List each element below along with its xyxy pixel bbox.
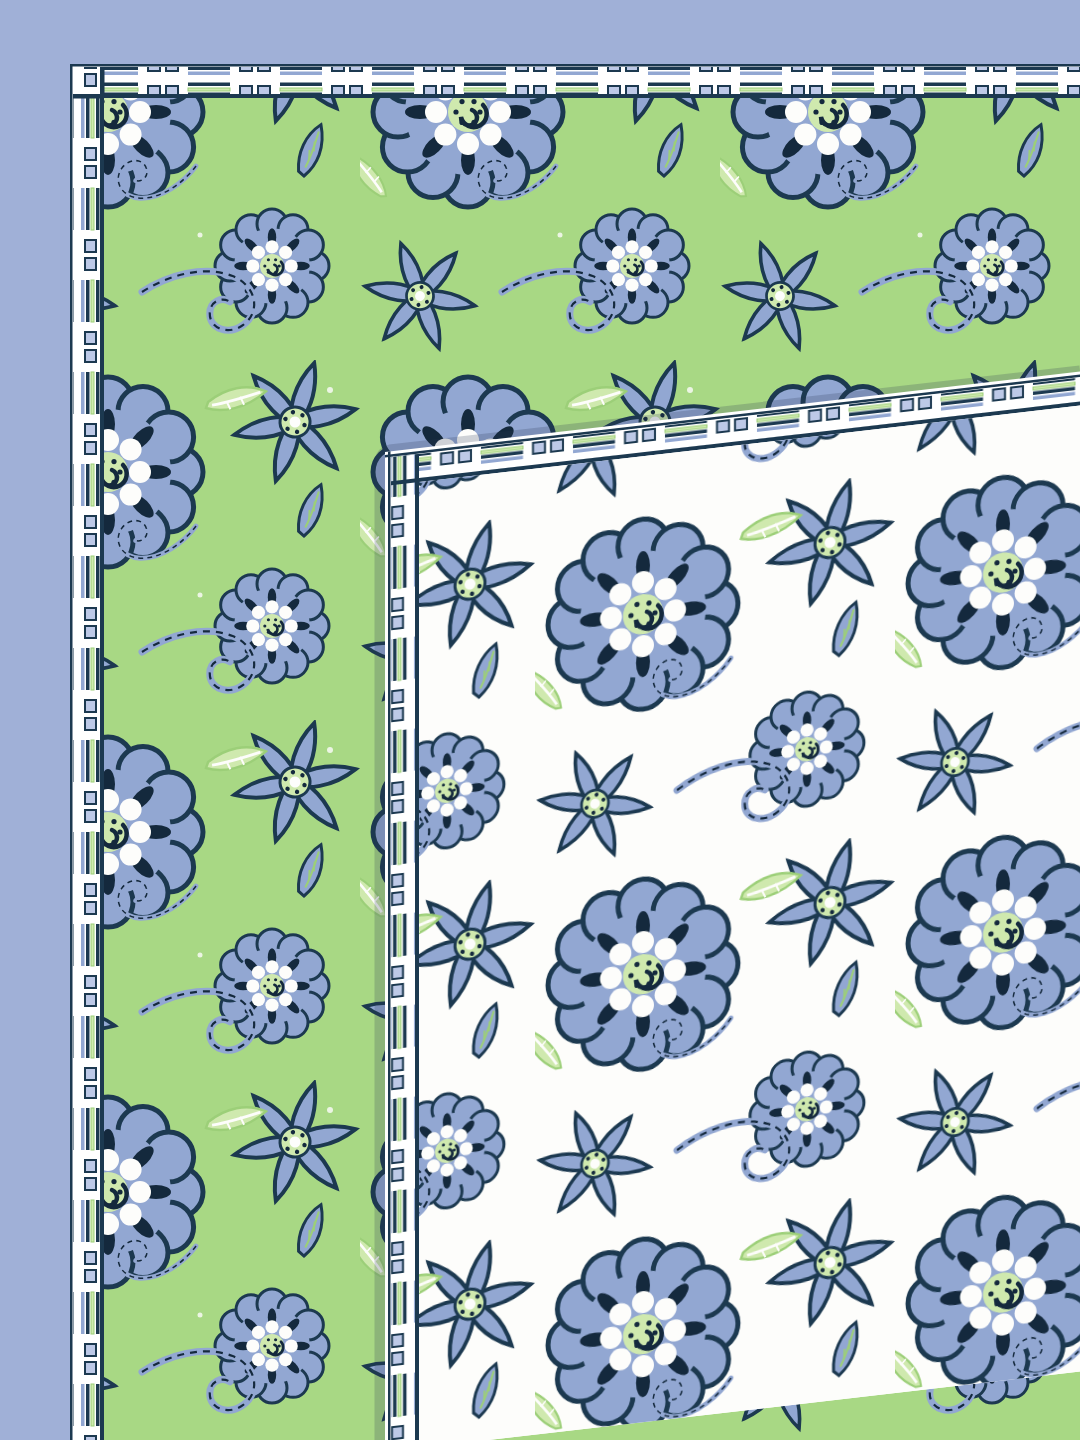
white-sheet-inner-seam-left — [415, 454, 419, 1440]
green-sheet-outer-seam-left — [70, 64, 73, 1440]
photo-canvas — [0, 0, 1080, 1440]
white-floral-field — [419, 406, 1080, 1440]
white-sheet-outer-seam-left — [388, 451, 391, 1440]
green-sheet-inner-seam-top — [73, 94, 1080, 99]
green-sheet-border-band-left — [73, 67, 100, 1440]
product-photo — [0, 0, 1080, 1440]
green-sheet-inner-seam-left — [100, 67, 105, 1440]
green-sheet-border-band-top — [73, 67, 1080, 94]
white-sheet — [385, 372, 1080, 1440]
white-sheet-border-band-left — [391, 455, 415, 1440]
green-sheet-outer-seam-top — [70, 64, 1080, 67]
